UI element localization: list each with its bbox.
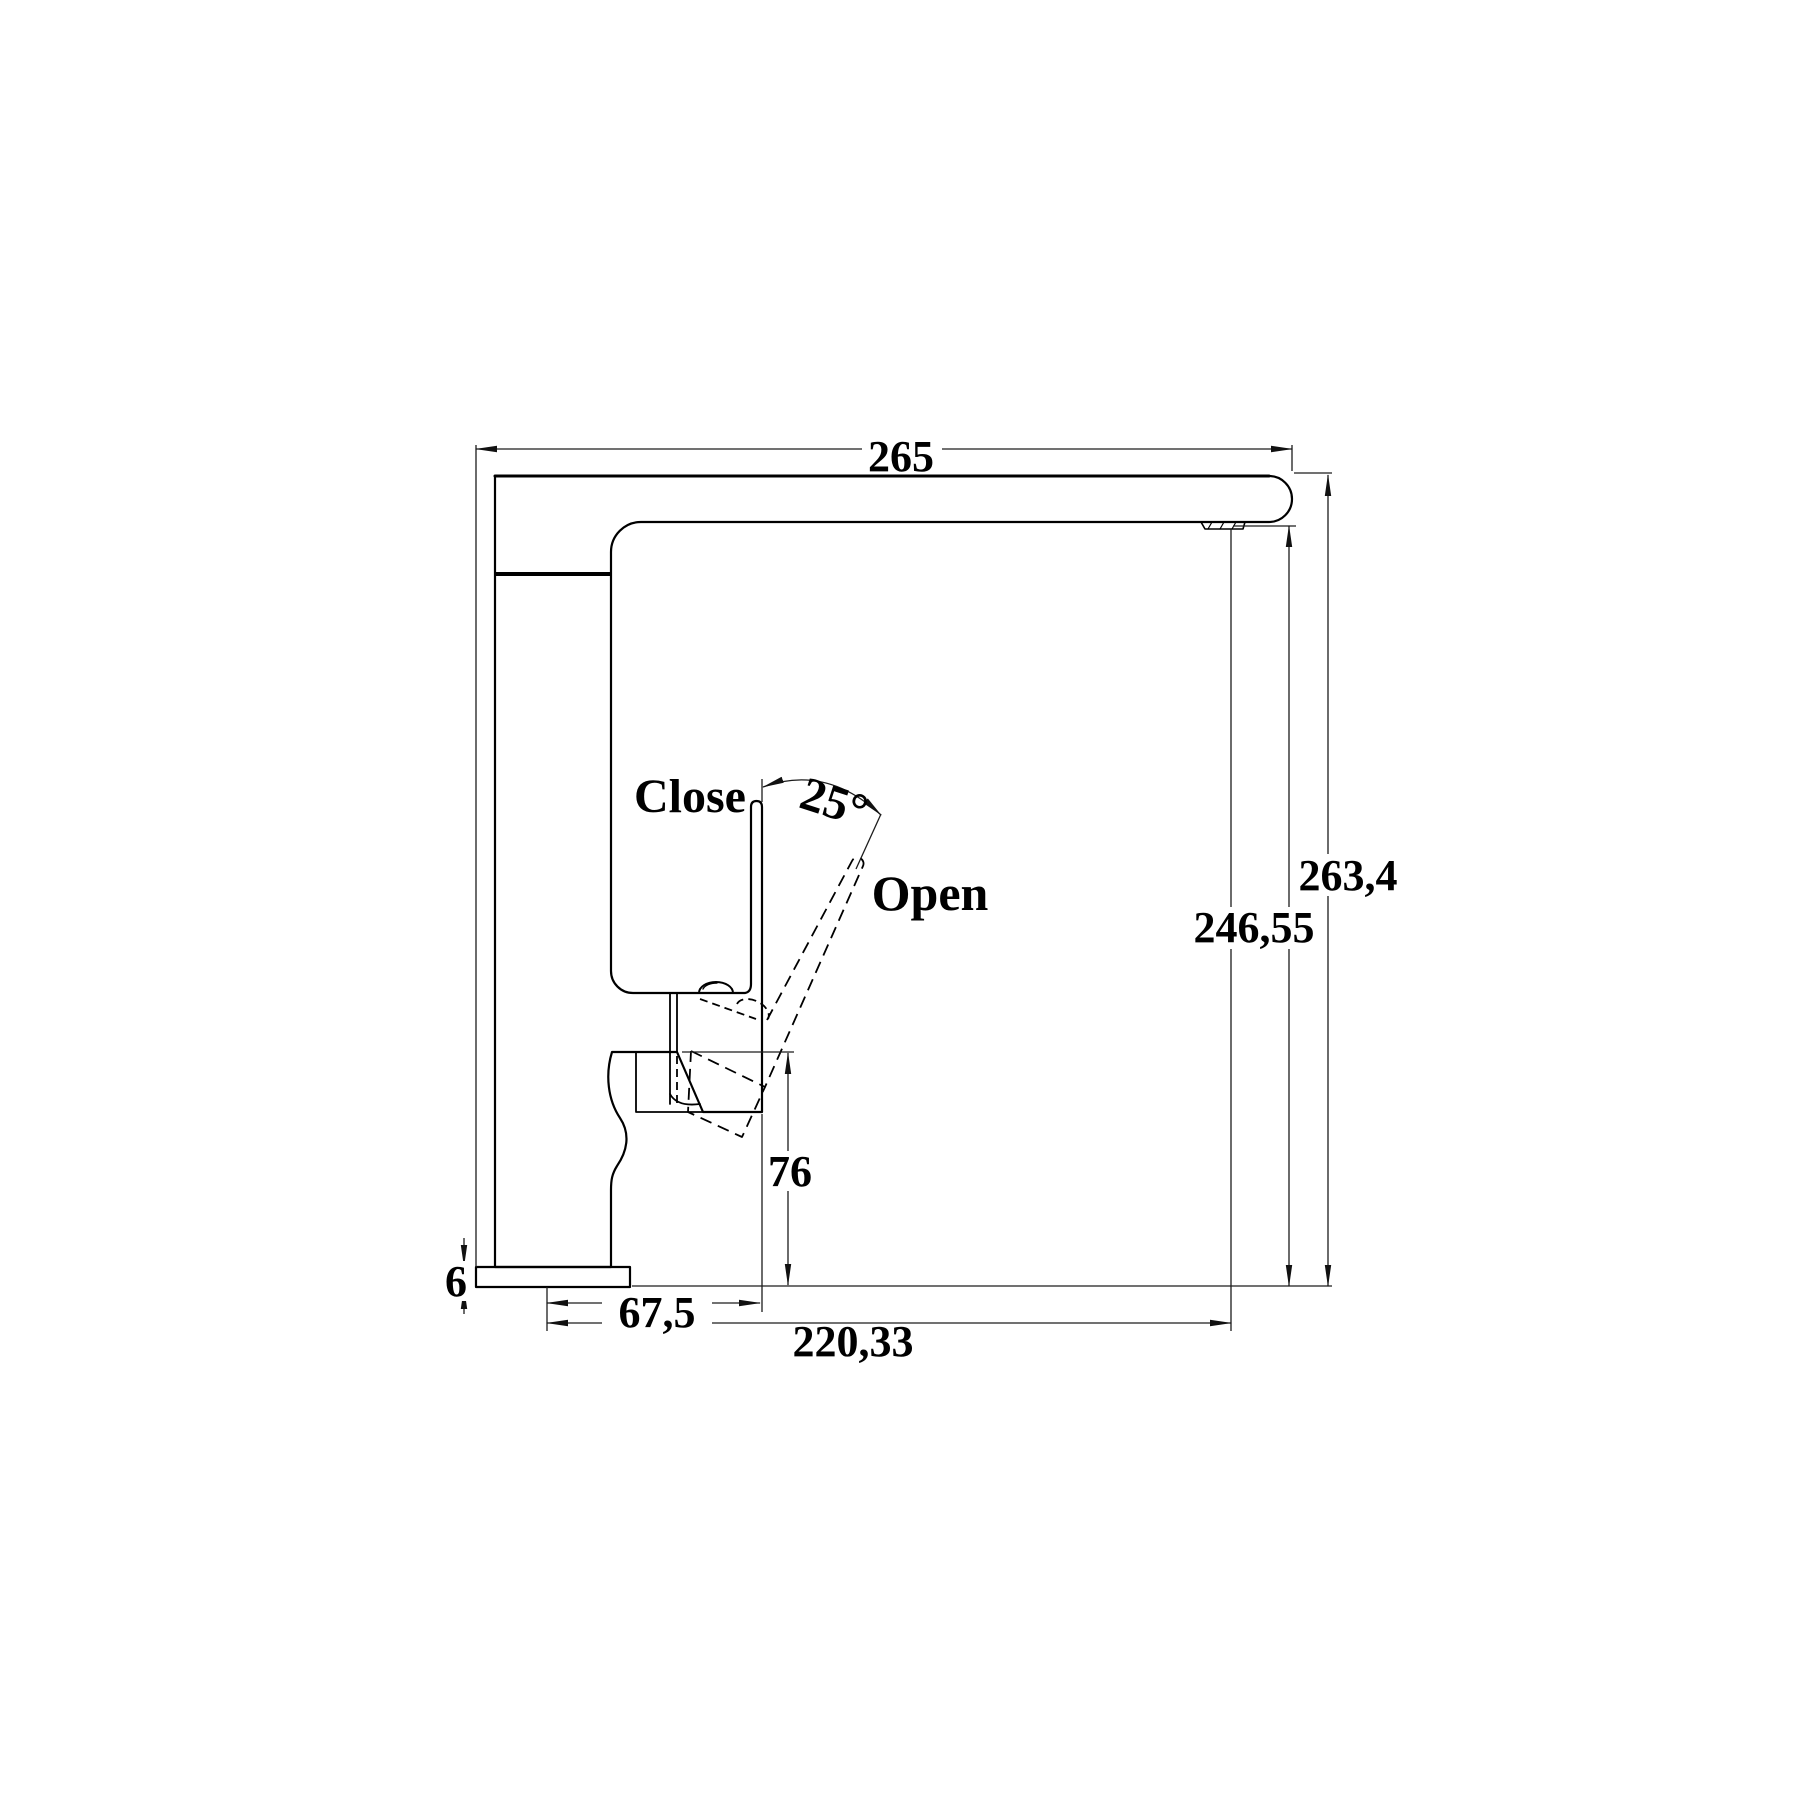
handle-open-dashed [677,857,864,1137]
open-cartridge-dashed [688,1051,765,1137]
close-label: Close [634,770,746,823]
technical-drawing: 265 263,4 246,55 76 6 67,5 220,33 25° Cl… [0,0,1800,1800]
base-plate [476,1267,630,1287]
dim-265-label: 265 [868,432,934,481]
open-cap-dashed [737,999,769,1019]
dim-76-label: 76 [768,1147,812,1196]
drawing-canvas: 265 263,4 246,55 76 6 67,5 220,33 25° Cl… [0,0,1800,1800]
dim-67-5-label: 67,5 [619,1288,696,1337]
open-label: Open [872,865,989,921]
dim-6-label: 6 [445,1257,467,1306]
dim-220-33-label: 220,33 [793,1317,914,1366]
cartridge-details [636,982,733,1112]
dim-246-55-label: 246,55 [1194,903,1315,952]
dim-263-4-label: 263,4 [1299,851,1398,900]
angle-25-label: 25° [794,767,874,838]
open-floor-dashed [700,999,756,1019]
